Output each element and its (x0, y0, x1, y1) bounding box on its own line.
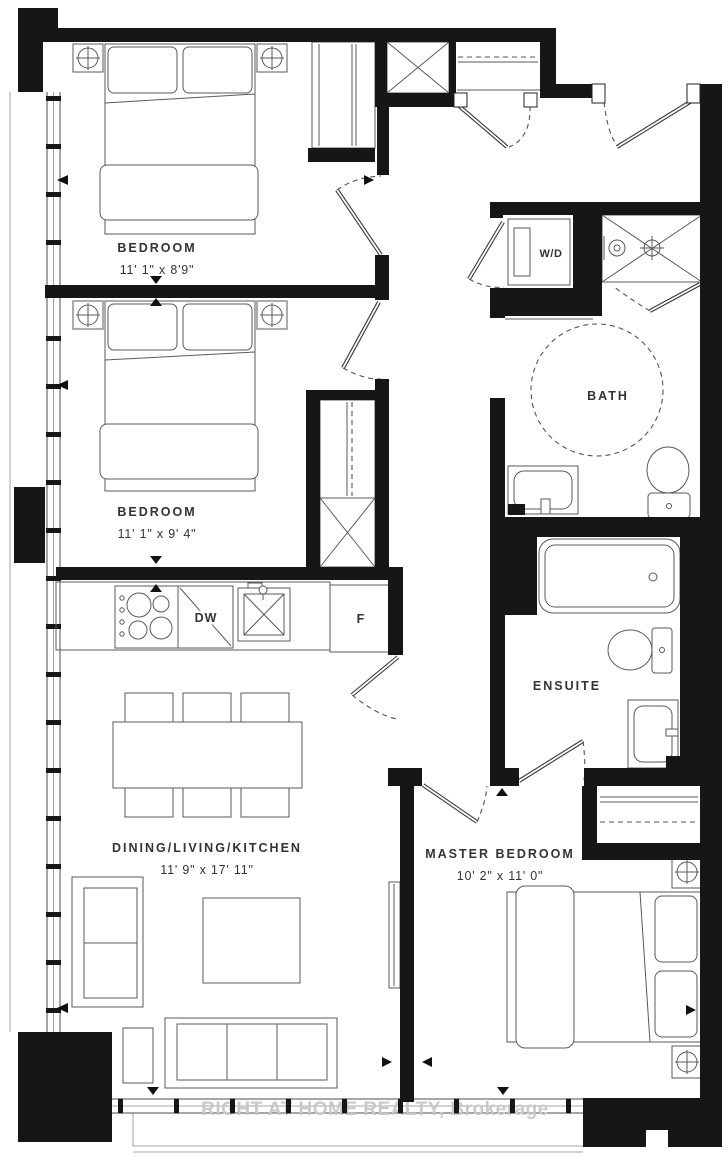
side-table (123, 1028, 153, 1083)
nightstand-lamp (672, 856, 703, 888)
dishwasher-label: DW (195, 611, 218, 625)
dining-chair (125, 693, 173, 722)
pillow-icon (108, 47, 177, 93)
dining-chair (241, 693, 289, 722)
bathtub-icon (539, 539, 680, 613)
shower-icon (602, 215, 702, 282)
bedroom2-label: BEDROOM (117, 505, 196, 519)
living-label: DINING/LIVING/KITCHEN (112, 841, 302, 855)
coat-closet-entry (457, 57, 540, 90)
living-dims: 11' 9" x 17' 11" (160, 863, 253, 877)
kitchen (56, 582, 390, 652)
shaft-closet-foyer (387, 42, 449, 93)
ensuite-bathroom (539, 539, 680, 768)
blanket-icon (100, 165, 258, 220)
living-dining (72, 693, 400, 1088)
vanity-sink-icon (628, 700, 680, 768)
pillow-icon (108, 304, 177, 350)
blanket-icon (516, 886, 574, 1048)
master-bedroom (507, 856, 703, 1078)
pillow-icon (655, 971, 697, 1037)
bedroom1-door (337, 176, 381, 255)
nightstand-lamp (73, 301, 103, 329)
tv-console (389, 882, 400, 988)
pillow-icon (183, 304, 252, 350)
bedroom1-label: BEDROOM (117, 241, 196, 255)
dining-chair (183, 788, 231, 817)
bedroom1-dims: 11' 1" x 8'9" (120, 263, 195, 277)
bedroom-2 (73, 301, 287, 491)
master-door (423, 785, 487, 822)
vanity-sink-icon (508, 466, 578, 515)
fridge-label: F (357, 612, 366, 626)
sofa-icon (165, 1018, 337, 1088)
window-wall-left (47, 92, 60, 1032)
dining-table-set (113, 693, 302, 817)
shower-door (613, 284, 700, 311)
coffee-table (203, 898, 300, 983)
washer-dryer-label: W/D (540, 248, 563, 260)
closet-master (600, 797, 698, 822)
dining-chair (183, 693, 231, 722)
washer-closet-door (469, 222, 504, 287)
entry-door (604, 102, 690, 147)
dining-table (113, 722, 302, 788)
kitchen-sink-icon (238, 583, 290, 641)
bedroom2-door (343, 302, 381, 379)
brokerage-watermark: RIGHT AT HOME REALTY, Brokerage (201, 1099, 549, 1120)
closet-bedroom2 (320, 400, 375, 498)
nightstand-lamp (672, 1046, 703, 1078)
foyer-door (459, 106, 530, 147)
bedroom-1 (73, 44, 287, 234)
pillow-icon (655, 896, 697, 962)
bath-label: BATH (587, 389, 629, 403)
hall-kitchen-door (352, 657, 398, 719)
nightstand-lamp (73, 44, 103, 72)
nightstand-lamp (257, 44, 287, 72)
blanket-icon (100, 424, 258, 479)
dining-chair (241, 788, 289, 817)
floor-plan: RIGHT AT HOME REALTY, Brokerage (0, 0, 728, 1166)
floor-plan-drawing: RIGHT AT HOME REALTY, Brokerage (0, 0, 728, 1166)
nightstand-lamp (257, 301, 287, 329)
bathroom (508, 215, 702, 518)
toilet-icon (608, 628, 672, 673)
shaft-closet-hall (320, 498, 375, 567)
loveseat-icon (72, 877, 143, 1007)
toilet-icon (647, 447, 690, 518)
ensuite-label: ENSUITE (533, 679, 601, 693)
bedroom2-dims: 11' 1" x 9' 4" (118, 527, 197, 541)
cooktop-icon (115, 586, 178, 648)
ensuite-door (519, 741, 585, 781)
master-label: MASTER BEDROOM (425, 847, 575, 861)
master-dims: 10' 2" x 11' 0" (457, 869, 544, 883)
pillow-icon (183, 47, 252, 93)
kitchen-counter (56, 582, 330, 650)
dining-chair (125, 788, 173, 817)
closet-bedroom1 (312, 42, 375, 148)
